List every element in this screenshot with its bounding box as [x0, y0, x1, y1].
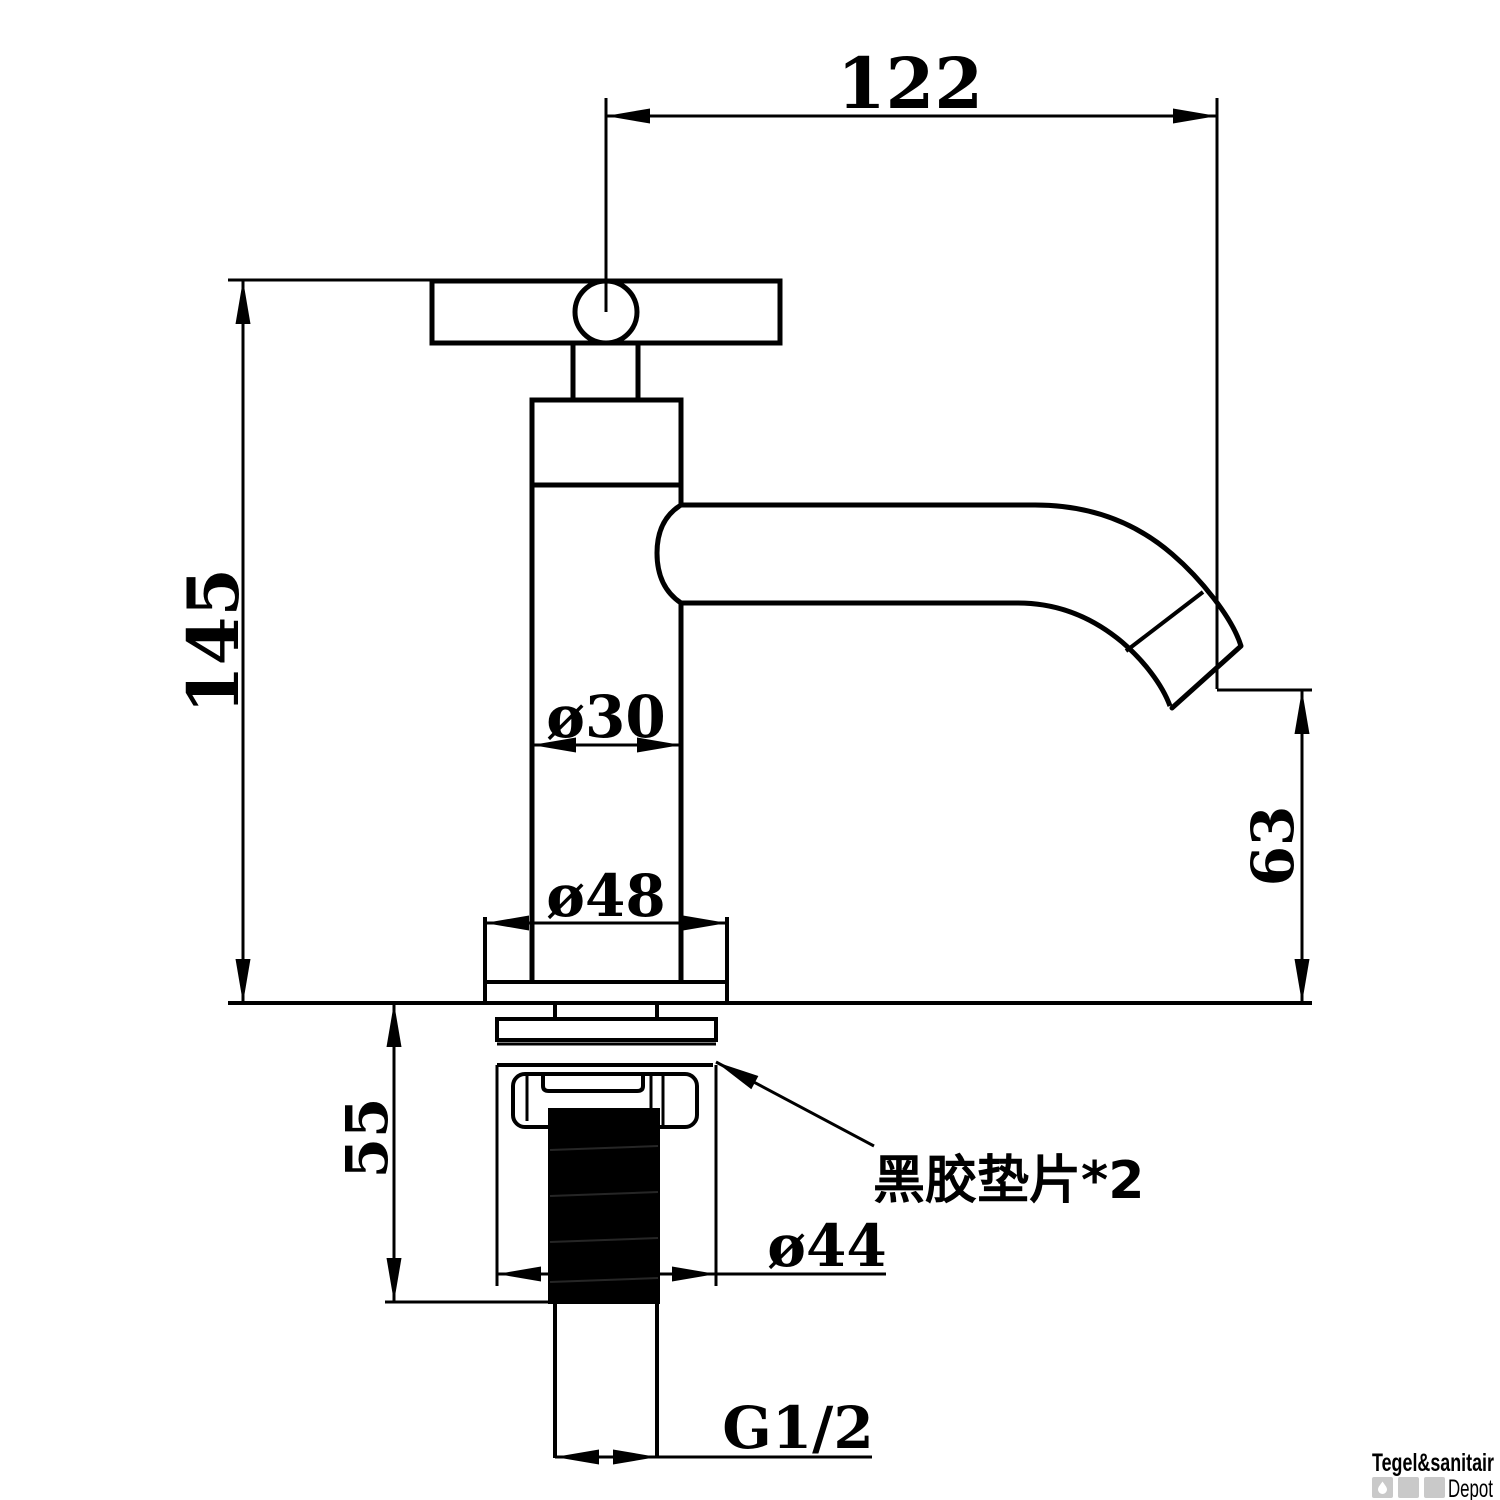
watermark: Tegel&sanitair Depot [1372, 1449, 1494, 1500]
washer-plate [497, 1019, 716, 1040]
aerator-line [1126, 592, 1203, 651]
dim-g12-label: G1/2 [722, 1394, 873, 1462]
dim-63-label: 63 [1239, 806, 1307, 887]
washer-note-label: 黑胶垫片*2 [873, 1151, 1144, 1211]
dimension-labels: 122 145 ø30 ø48 63 55 ø44 G1/2 黑胶垫片*2 [172, 42, 1307, 1462]
drawing-page: 122 145 ø30 ø48 63 55 ø44 G1/2 黑胶垫片*2 Te… [0, 0, 1500, 1500]
spout-tip-face [1172, 646, 1241, 708]
faucet-technical-drawing: 122 145 ø30 ø48 63 55 ø44 G1/2 黑胶垫片*2 Te… [0, 0, 1500, 1500]
dim-122-label: 122 [837, 42, 983, 125]
dim-44-label: ø44 [767, 1212, 886, 1280]
spout-joint-bulge [657, 505, 681, 603]
watermark-square-3 [1424, 1477, 1445, 1498]
watermark-square-2 [1398, 1477, 1419, 1498]
spout-bottom-edge [681, 603, 1170, 706]
body-top-block [532, 400, 681, 485]
dim-30-label: ø30 [546, 683, 665, 751]
watermark-depot: Depot [1448, 1475, 1493, 1500]
dim-55-label: 55 [333, 1098, 401, 1179]
locknut-notch [543, 1074, 643, 1091]
washer-leader-arrowhead [712, 1055, 758, 1089]
dim-48-label: ø48 [546, 862, 665, 930]
dim-145-label: 145 [172, 568, 255, 714]
watermark-brand: Tegel&sanitair [1372, 1449, 1494, 1477]
